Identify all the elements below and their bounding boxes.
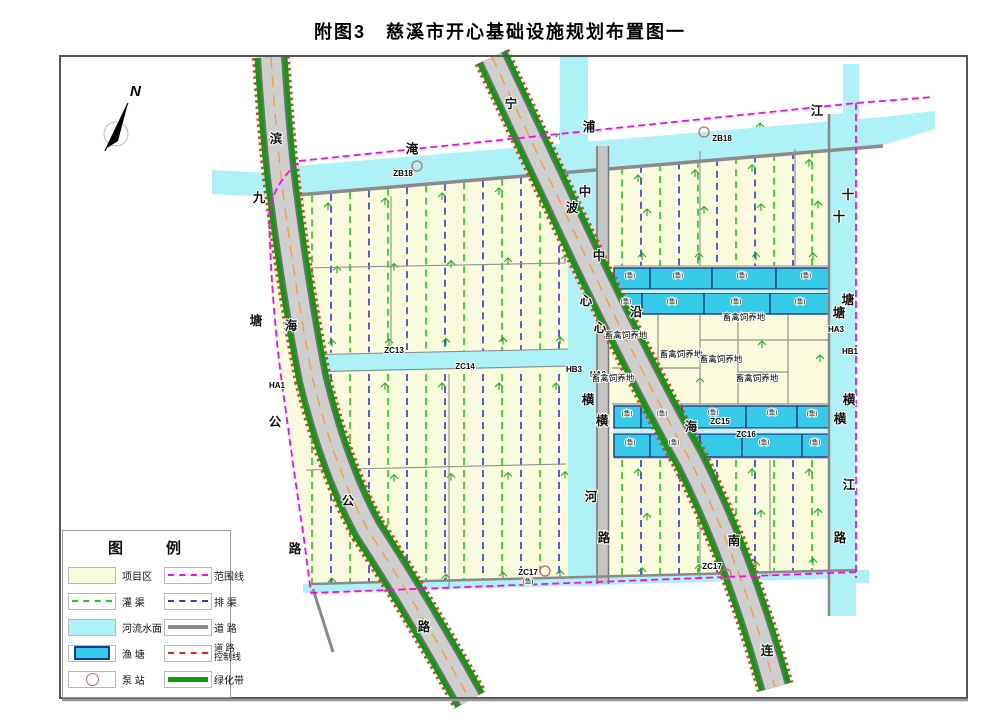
map-label: (鱼) (625, 437, 636, 446)
legend-label-greenbelt: 绿化带 (214, 672, 244, 687)
map-label: 横 (843, 392, 856, 407)
map-label: 畜禽饲养地 (592, 373, 635, 383)
map-label: ZC13 (384, 346, 404, 355)
map-label: ZC17 (702, 562, 722, 571)
control-line-sample (168, 652, 208, 654)
map-label: (鱼) (767, 407, 778, 416)
map-label: (鱼) (759, 437, 770, 446)
map-label: 畜禽饲养地 (660, 349, 703, 359)
map-label: 横 (834, 411, 847, 426)
map-label: (鱼) (708, 407, 719, 416)
legend-grid: 项目区 范围线 灌 渠 排 渠 河流水面 道 路 渔 塘 道 路 控制线 泵 (68, 562, 230, 692)
map-label: 江 (843, 477, 856, 492)
map-label: (鱼) (673, 270, 684, 279)
map-label: ZC17 (518, 568, 538, 577)
map-label: ZC15 (710, 417, 730, 426)
map-label: 畜禽饲养地 (736, 373, 779, 383)
map-label: (鱼) (669, 437, 680, 446)
map-label: 畜禽饲养地 (723, 312, 766, 322)
pump-station-icon (86, 673, 99, 686)
map-label: (鱼) (622, 408, 633, 417)
map-label: 路 (598, 530, 611, 545)
map-label: HA3 (828, 325, 845, 334)
legend-swatch-project-area (68, 567, 116, 584)
map-label: 海 (285, 318, 298, 333)
map-label: (鱼) (731, 296, 742, 305)
map-label: 九 (252, 190, 266, 205)
map-label: 路 (834, 530, 847, 545)
legend-swatch-pond (68, 645, 116, 662)
legend-swatch-greenbelt (164, 671, 212, 688)
legend-label-pump-station: 泵 站 (122, 672, 164, 687)
map-label: 十 (842, 187, 855, 202)
legend-swatch-drainage (164, 593, 212, 610)
map-label: (鱼) (625, 270, 636, 279)
greenbelt-line-sample (168, 677, 208, 682)
pond-sample (74, 646, 110, 660)
legend-swatch-road (164, 619, 212, 636)
map-label: 塘 (250, 313, 263, 328)
north-arrow: N (104, 83, 142, 151)
map-label: 塘 (842, 292, 855, 307)
boundary-line-sample (168, 574, 208, 576)
map-label: 畜禽饲养地 (700, 354, 743, 364)
legend-swatch-irrigation (68, 593, 116, 610)
map-label: (鱼) (737, 270, 748, 279)
map-label: ZC16 (736, 430, 756, 439)
planning-map-page: 附图3 慈溪市开心基础设施规划布置图一 滨海公路九塘公路宁波沿海南连淹浦江中心横… (0, 0, 1000, 725)
map-label: 畜禽饲养地 (605, 330, 648, 340)
legend-label-project-area: 项目区 (122, 568, 164, 583)
map-label: 滨 (270, 131, 283, 146)
map-label: 沿 (629, 305, 643, 319)
map-label: HB3 (566, 365, 583, 374)
map-label: 浦 (583, 119, 596, 134)
map-label: 公 (342, 494, 355, 508)
map-label: 河 (585, 489, 598, 504)
legend-label-road: 道 路 (214, 620, 244, 635)
map-label: 南 (728, 533, 741, 548)
map-label: 路 (289, 541, 302, 556)
legend-swatch-river (68, 619, 116, 636)
legend-title: 图 例 (73, 537, 230, 558)
map-label: ZC14 (455, 362, 475, 371)
map-label: 横 (596, 413, 609, 428)
map-label: (鱼) (801, 270, 812, 279)
map-label: 横 (582, 392, 595, 407)
drainage-line-sample (168, 600, 208, 602)
map-label: (鱼) (795, 296, 806, 305)
map-label: (鱼) (810, 437, 821, 446)
map-label: 十 (833, 209, 846, 224)
map-label: 中 (579, 184, 592, 199)
legend-label-control-line: 道 路 控制线 (214, 644, 244, 663)
map-label: (鱼) (523, 576, 534, 585)
map-label: 心 (580, 294, 593, 308)
map-label: 公 (269, 415, 282, 429)
map-label: 连 (761, 643, 774, 658)
legend-box: 图 例 项目区 范围线 灌 渠 排 渠 河流水面 道 路 渔 塘 道 路 控制线 (62, 530, 231, 698)
legend-label-river: 河流水面 (122, 620, 164, 635)
legend-label-control-line-2: 控制线 (214, 652, 241, 662)
map-label: HA1 (269, 381, 286, 390)
legend-swatch-pump-station (68, 671, 116, 688)
legend-label-boundary: 范围线 (214, 568, 244, 583)
map-label: (鱼) (657, 408, 668, 417)
map-label: 江 (811, 103, 824, 118)
map-label: (鱼) (807, 408, 818, 417)
map-label: 塘 (833, 305, 846, 320)
legend-label-drainage: 排 渠 (214, 594, 244, 609)
map-label: 海 (685, 419, 698, 434)
map-label: (鱼) (667, 296, 678, 305)
map-label: 淹 (406, 141, 419, 156)
map-label: ZB18 (393, 169, 413, 178)
map-label: HB1 (842, 347, 859, 356)
map-label: 宁 (505, 96, 518, 111)
north-label: N (130, 83, 142, 100)
legend-swatch-control-line (164, 645, 212, 662)
road-line-sample (168, 625, 208, 629)
irrigation-line-sample (72, 600, 112, 602)
legend-label-irrigation: 灌 渠 (122, 594, 164, 609)
legend-swatch-boundary (164, 567, 212, 584)
map-label: (鱼) (621, 296, 632, 305)
legend-label-pond: 渔 塘 (122, 646, 164, 661)
map-label: 中 (593, 248, 606, 263)
map-label: 波 (566, 200, 579, 215)
map-label: 路 (418, 619, 431, 634)
map-label: ZB18 (712, 134, 732, 143)
